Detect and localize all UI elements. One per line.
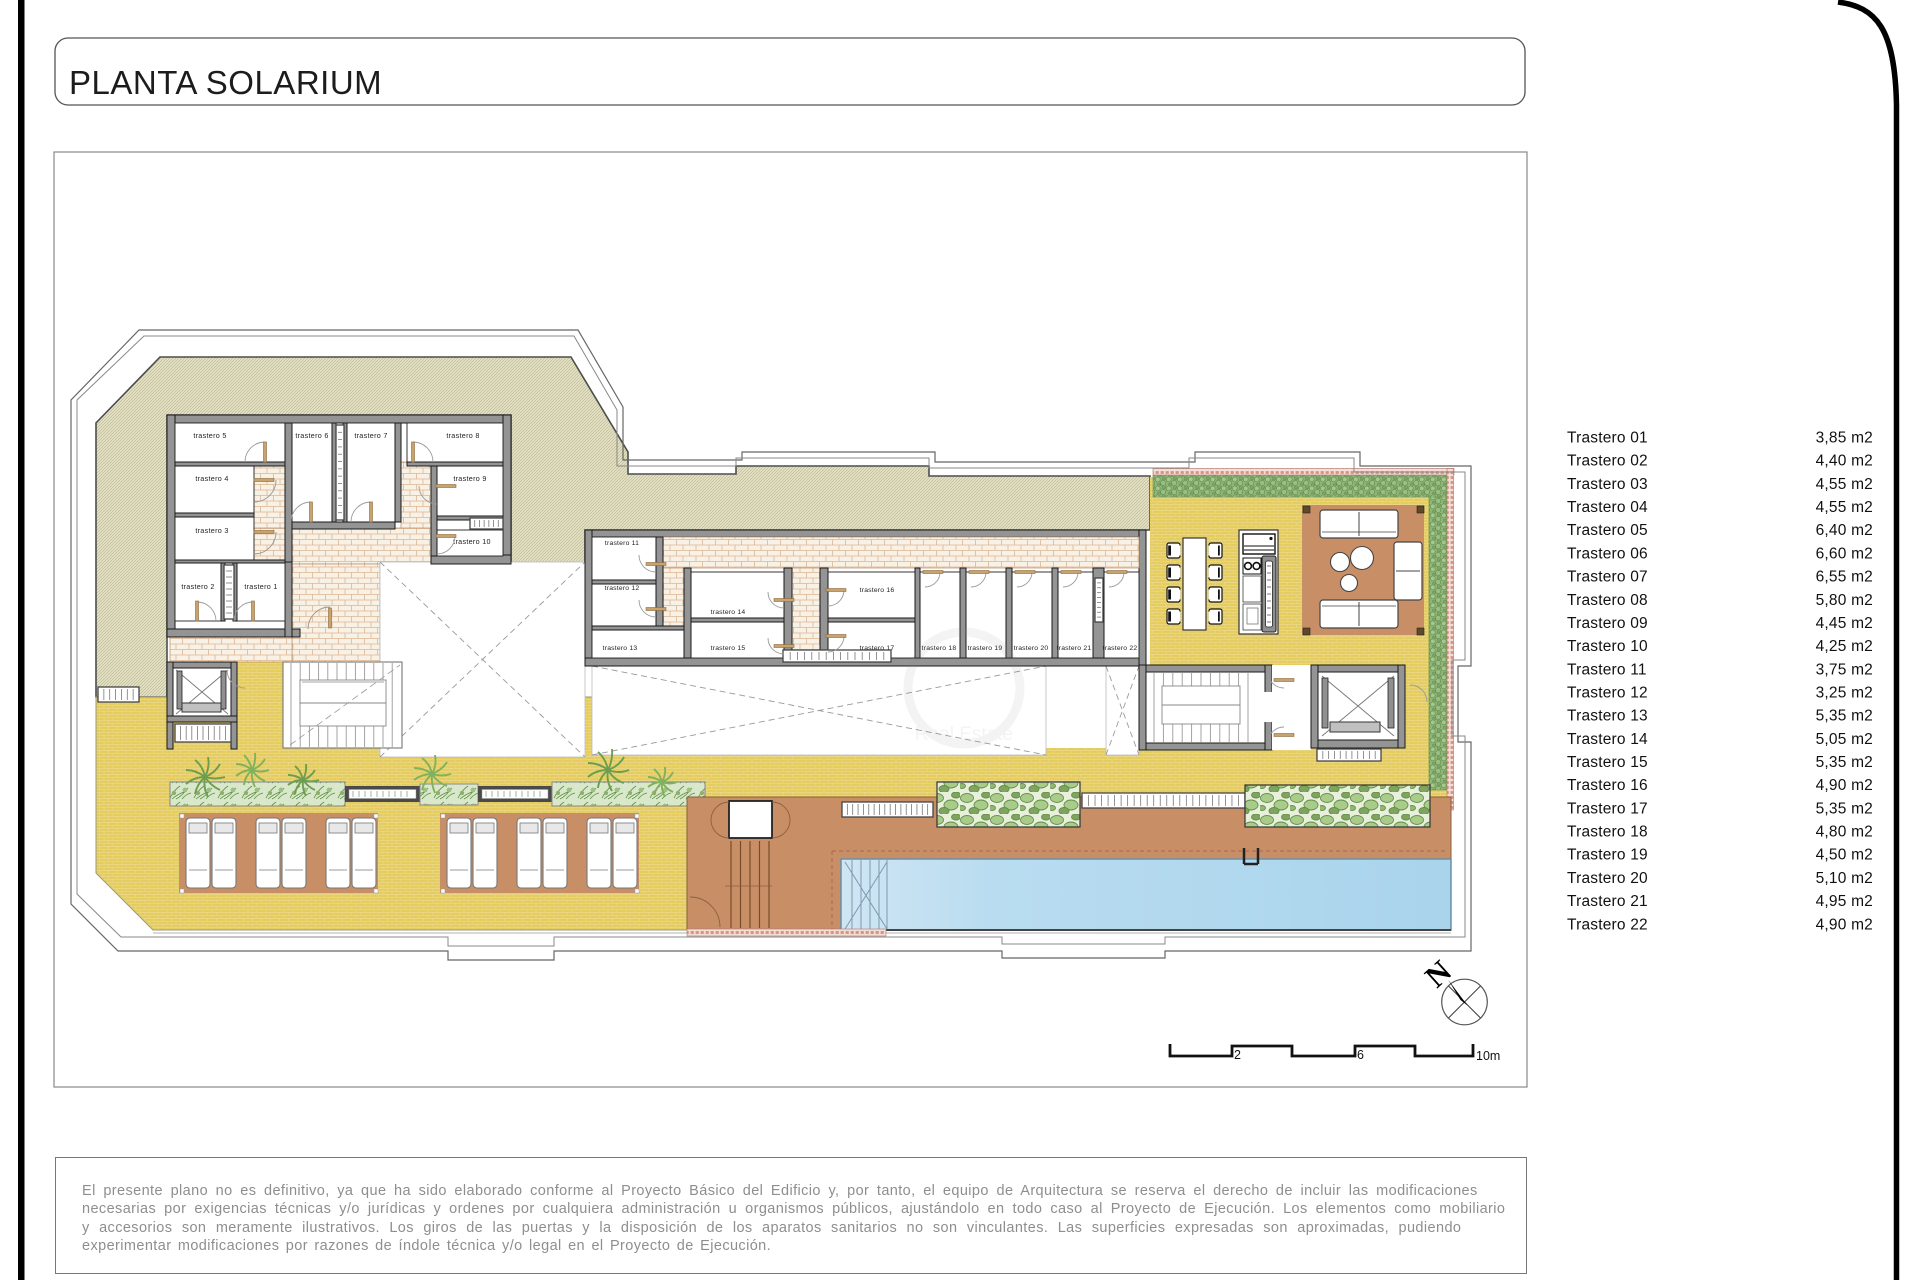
svg-text:trastero 17: trastero 17 — [860, 645, 895, 652]
svg-text:Trastero 11: Trastero 11 — [1567, 661, 1647, 678]
svg-text:trastero 14: trastero 14 — [711, 609, 746, 616]
svg-text:trastero 16: trastero 16 — [860, 587, 895, 594]
svg-text:10m: 10m — [1476, 1049, 1500, 1063]
svg-text:4,90 m2: 4,90 m2 — [1816, 777, 1873, 794]
svg-text:4,95 m2: 4,95 m2 — [1816, 893, 1873, 910]
svg-text:4,40 m2: 4,40 m2 — [1816, 453, 1873, 470]
svg-text:5,05 m2: 5,05 m2 — [1816, 731, 1873, 748]
svg-text:trastero 10: trastero 10 — [453, 537, 491, 546]
svg-text:4,90 m2: 4,90 m2 — [1816, 916, 1873, 933]
svg-text:Trastero 12: Trastero 12 — [1567, 684, 1648, 701]
svg-text:4,25 m2: 4,25 m2 — [1816, 638, 1873, 655]
svg-text:Trastero 21: Trastero 21 — [1567, 893, 1648, 910]
svg-text:4,45 m2: 4,45 m2 — [1816, 615, 1873, 632]
svg-text:Trastero 02: Trastero 02 — [1567, 453, 1648, 470]
svg-text:3,85 m2: 3,85 m2 — [1816, 430, 1873, 447]
svg-text:5,35 m2: 5,35 m2 — [1816, 754, 1873, 771]
svg-text:Trastero 05: Trastero 05 — [1567, 522, 1648, 539]
svg-text:Trastero 03: Trastero 03 — [1567, 476, 1648, 493]
svg-text:3,25 m2: 3,25 m2 — [1816, 684, 1873, 701]
svg-text:5,80 m2: 5,80 m2 — [1816, 592, 1873, 609]
svg-text:6,40 m2: 6,40 m2 — [1816, 522, 1873, 539]
svg-text:trastero 5: trastero 5 — [193, 431, 226, 440]
svg-text:4,80 m2: 4,80 m2 — [1816, 824, 1873, 841]
svg-text:Trastero 13: Trastero 13 — [1567, 708, 1648, 725]
svg-text:5,35 m2: 5,35 m2 — [1816, 708, 1873, 725]
svg-text:4,50 m2: 4,50 m2 — [1816, 847, 1873, 864]
svg-text:trastero 6: trastero 6 — [295, 431, 328, 440]
svg-text:Trastero 17: Trastero 17 — [1567, 800, 1648, 817]
svg-text:trastero 21: trastero 21 — [1057, 645, 1092, 652]
svg-text:trastero 7: trastero 7 — [354, 431, 387, 440]
svg-text:trastero 9: trastero 9 — [453, 474, 486, 483]
svg-text:Trastero 18: Trastero 18 — [1567, 824, 1648, 841]
svg-text:Trastero 06: Trastero 06 — [1567, 545, 1648, 562]
svg-text:Trastero 04: Trastero 04 — [1567, 499, 1648, 516]
svg-text:Trastero 19: Trastero 19 — [1567, 847, 1648, 864]
svg-text:6,60 m2: 6,60 m2 — [1816, 545, 1873, 562]
svg-text:Trastero 09: Trastero 09 — [1567, 615, 1648, 632]
svg-text:trastero 4: trastero 4 — [195, 474, 228, 483]
svg-text:trastero 20: trastero 20 — [1014, 645, 1049, 652]
svg-text:4,55 m2: 4,55 m2 — [1816, 476, 1873, 493]
svg-text:trastero 22: trastero 22 — [1103, 645, 1138, 652]
svg-text:5,10 m2: 5,10 m2 — [1816, 870, 1873, 887]
svg-text:trastero 11: trastero 11 — [605, 540, 639, 547]
svg-text:5,35 m2: 5,35 m2 — [1816, 800, 1873, 817]
svg-text:Trastero 10: Trastero 10 — [1567, 638, 1648, 655]
svg-text:trastero 13: trastero 13 — [603, 645, 638, 652]
svg-text:Trastero 22: Trastero 22 — [1567, 916, 1648, 933]
svg-text:Trastero 20: Trastero 20 — [1567, 870, 1648, 887]
svg-text:Trastero 01: Trastero 01 — [1567, 430, 1648, 447]
svg-text:Trastero 08: Trastero 08 — [1567, 592, 1648, 609]
svg-text:Trastero 16: Trastero 16 — [1567, 777, 1648, 794]
svg-text:trastero 8: trastero 8 — [446, 431, 479, 440]
svg-text:6,55 m2: 6,55 m2 — [1816, 569, 1873, 586]
svg-text:trastero 1: trastero 1 — [244, 582, 277, 591]
svg-text:Trastero 15: Trastero 15 — [1567, 754, 1648, 771]
svg-text:trastero 3: trastero 3 — [195, 526, 228, 535]
svg-text:trastero 12: trastero 12 — [605, 585, 640, 592]
svg-text:trastero 2: trastero 2 — [181, 582, 214, 591]
svg-text:6: 6 — [1357, 1048, 1364, 1062]
svg-text:Trastero 14: Trastero 14 — [1567, 731, 1648, 748]
svg-text:2: 2 — [1234, 1048, 1241, 1062]
svg-text:Trastero 07: Trastero 07 — [1567, 569, 1648, 586]
svg-text:3,75 m2: 3,75 m2 — [1816, 661, 1873, 678]
svg-text:PLANTA SOLARIUM: PLANTA SOLARIUM — [69, 64, 382, 101]
svg-text:trastero 15: trastero 15 — [711, 645, 746, 652]
svg-text:4,55 m2: 4,55 m2 — [1816, 499, 1873, 516]
svg-text:Real Estate: Real Estate — [915, 724, 1013, 745]
